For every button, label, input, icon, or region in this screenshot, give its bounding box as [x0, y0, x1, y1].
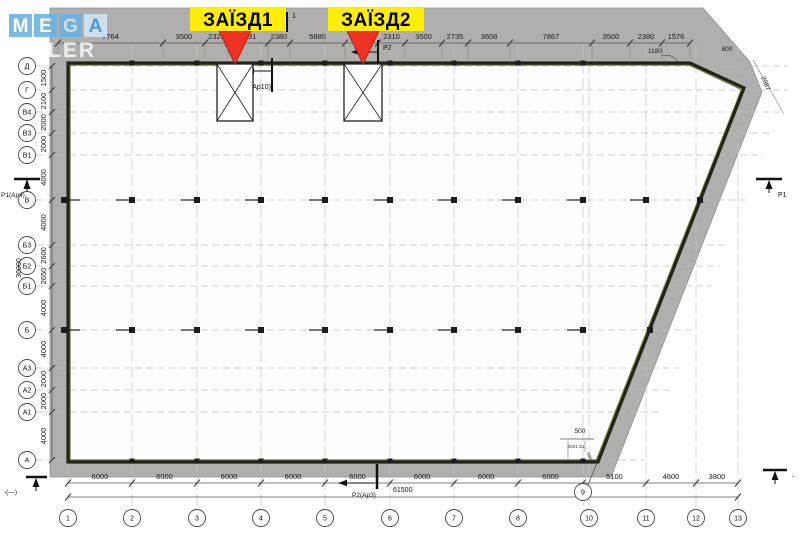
- column-square-row-v: [387, 197, 393, 203]
- section-p1-right-arrow-icon: [766, 180, 773, 189]
- axis-bubble-row-label: А2: [23, 388, 32, 395]
- column-square-row-v: [643, 197, 649, 203]
- dim-bottom-label: 6000: [349, 472, 366, 481]
- dim-left-label: 4000: [39, 300, 48, 317]
- dim-bottom-label: 6000: [285, 472, 302, 481]
- column-square-row-v: [451, 197, 457, 203]
- dim-left-label: 2000: [39, 114, 48, 131]
- dim-left-label: 4000: [39, 169, 48, 186]
- column-square-top-wall: [581, 61, 586, 66]
- datum-right-label: -: [792, 474, 795, 481]
- dim-bottom-label: 3800: [709, 472, 726, 481]
- dim-500: 500: [575, 428, 586, 435]
- column-square-top-wall: [259, 61, 264, 66]
- dim-left-label: 2000: [39, 136, 48, 153]
- column-square-row-v: [61, 197, 67, 203]
- watermark-letter: M: [13, 16, 29, 37]
- datum-left-arrow-icon: [33, 478, 40, 487]
- axis-bubble-col-label: 11: [642, 516, 649, 523]
- column-square-row-v: [129, 197, 135, 203]
- dim-top-label: 3500: [603, 32, 620, 41]
- dim-left-label: 4000: [39, 214, 48, 231]
- column-square-top-wall: [195, 61, 200, 66]
- axis-bubble-row-label: Д: [25, 64, 30, 71]
- datum-right-arrow-icon: [772, 471, 779, 480]
- dim-bottom-label: 6000: [92, 472, 109, 481]
- axis-bubble-col-label: 9: [581, 490, 585, 497]
- column-square-bottom-wall: [452, 459, 457, 464]
- column-square-row-b: [194, 327, 200, 333]
- axis-bubble-row-label: В3: [23, 131, 32, 138]
- column-square-row-v: [258, 197, 264, 203]
- column-square-top-wall: [452, 61, 457, 66]
- column-square-row-b: [258, 327, 264, 333]
- dim-top-label: 2380: [271, 32, 288, 41]
- dim-top-label: 2380: [638, 32, 655, 41]
- axis-bubble-row-label: А: [25, 458, 30, 465]
- column-square-row-v: [194, 197, 200, 203]
- dim-bottom-label: 6000: [221, 472, 238, 481]
- section-p1-left-arrow-icon: [24, 179, 31, 189]
- axis-bubble-col-label: 13: [734, 516, 742, 523]
- axis-bubble-row-label: Б1: [23, 284, 32, 291]
- dim-bottom-label: 6000: [156, 472, 173, 481]
- column-square-row-v: [322, 197, 328, 203]
- section-p1-left-label: P1(Ap4): [1, 192, 25, 199]
- column-square-bottom-wall: [259, 459, 264, 464]
- dim-left-label: 4000: [39, 341, 48, 358]
- dim-left-label: 2100: [39, 93, 48, 110]
- column-square-row-b: [515, 327, 521, 333]
- dim-bottom-label: 6000: [414, 472, 431, 481]
- column-square-bottom-wall: [516, 459, 521, 464]
- entrance-ramp-2: [344, 64, 382, 121]
- entrance-label-2: ЗАЇЗД2: [328, 8, 424, 31]
- axis-bubble-col-label: 4: [259, 516, 263, 523]
- column-square-top-wall: [516, 61, 521, 66]
- section-p2-bottom-label: P2(Ap3): [352, 492, 376, 499]
- watermark-letter: A: [89, 16, 103, 37]
- watermark-subtitle: LER: [48, 39, 96, 62]
- dim-top-label: 3500: [415, 32, 432, 41]
- dim-bottom-label: 6000: [478, 472, 495, 481]
- dim-800: 800: [722, 46, 733, 53]
- column-square-bottom-wall: [323, 459, 328, 464]
- column-square-bottom-wall: [388, 459, 393, 464]
- section-p1-right-label: P1: [778, 192, 787, 199]
- dim-small-note: 2021.51: [567, 444, 585, 450]
- axis-bubble-row-label: А1: [23, 410, 32, 417]
- axis-bubble-row-label: Г: [25, 88, 29, 95]
- axis-bubble-row-label: Б3: [23, 243, 32, 250]
- axis-bubble-col-label: 1: [66, 516, 70, 523]
- section-p2-top-label: P2: [383, 45, 392, 52]
- dim-bottom-label: 4600: [663, 472, 680, 481]
- axis-bubble-row-label: В: [25, 198, 30, 205]
- section-p2-bottom-arrow-icon: [338, 480, 347, 486]
- dim-1180: 1180: [648, 48, 662, 55]
- dim-total-bottom: 61500: [393, 487, 413, 494]
- column-square-row-b: [322, 327, 328, 333]
- dim-left-label: 2600: [39, 247, 48, 264]
- watermark-letter: G: [63, 16, 78, 37]
- floor-area: [68, 63, 744, 462]
- dim-left-label: 4000: [39, 428, 48, 445]
- floor-plan-drawing: 7764350023293591238058803510231035002735…: [0, 0, 800, 541]
- floor-plan-page: 7764350023293591238058803510231035002735…: [0, 0, 800, 541]
- column-square-row-b: [61, 327, 67, 333]
- axis-bubble-col-label: 12: [692, 516, 700, 523]
- column-square-row-b: [580, 327, 586, 333]
- column-square-row-v: [697, 197, 703, 203]
- column-square-row-b: [387, 327, 393, 333]
- dim-left-label: 2000: [39, 393, 48, 410]
- column-square-bottom-wall: [195, 459, 200, 464]
- dim-bottom-label: 5100: [606, 472, 623, 481]
- entrance-label-1-text: ЗАЇЗД1: [203, 10, 273, 31]
- section-1-label: 1: [292, 13, 296, 20]
- axis-bubble-col-label: 3: [195, 516, 199, 523]
- axis-bubble-col-label: 8: [516, 516, 520, 523]
- dim-left-label: 1500: [39, 70, 48, 87]
- column-square-row-b: [129, 327, 135, 333]
- column-square-row-b: [647, 327, 653, 333]
- dim-top-label: 2310: [383, 32, 400, 41]
- axis-bubble-row-label: Б: [25, 328, 30, 335]
- datum-left-label: -(—): [4, 489, 17, 496]
- column-square-row-v: [580, 197, 586, 203]
- entrance-ramp-1: [217, 64, 253, 121]
- entrance-label-2-text: ЗАЇЗД2: [341, 10, 411, 31]
- building-layer: [50, 8, 762, 477]
- dim-top-label: 2735: [447, 32, 464, 41]
- axis-bubble-col-label: 10: [585, 516, 593, 523]
- dim-top-label: 7867: [543, 32, 560, 41]
- column-square-top-wall: [323, 61, 328, 66]
- column-square-bottom-wall: [130, 459, 135, 464]
- watermark-letter: E: [39, 16, 52, 37]
- axis-bubble-row-label: В4: [23, 110, 32, 117]
- axis-bubble-col-label: 2: [130, 516, 134, 523]
- axis-bubble-row-label: Б2: [23, 264, 32, 271]
- column-square-row-b: [451, 327, 457, 333]
- dim-left-label: 2000: [39, 371, 48, 388]
- dim-bottom-label: 6000: [542, 472, 559, 481]
- dim-top-label: 3500: [176, 32, 193, 41]
- column-square-bottom-wall: [581, 459, 586, 464]
- dim-total-left: 36000: [16, 258, 23, 278]
- dim-top-label: 3608: [481, 32, 498, 41]
- axis-bubble-col-label: 5: [323, 516, 327, 523]
- dim-top-label: 1576: [668, 32, 685, 41]
- axis-bubble-col-label: 6: [388, 516, 392, 523]
- axis-bubble-col-label: 7: [452, 516, 456, 523]
- column-square-top-wall: [130, 61, 135, 66]
- entrance-label-1: ЗАЇЗД1: [190, 8, 286, 31]
- axis-bubble-row-label: В1: [23, 153, 32, 160]
- dim-left-label: 2650: [39, 268, 48, 285]
- dim-top-label: 5880: [309, 32, 326, 41]
- column-square-row-v: [515, 197, 521, 203]
- column-square-top-wall: [388, 61, 393, 66]
- axis-bubble-row-label: А3: [23, 366, 32, 373]
